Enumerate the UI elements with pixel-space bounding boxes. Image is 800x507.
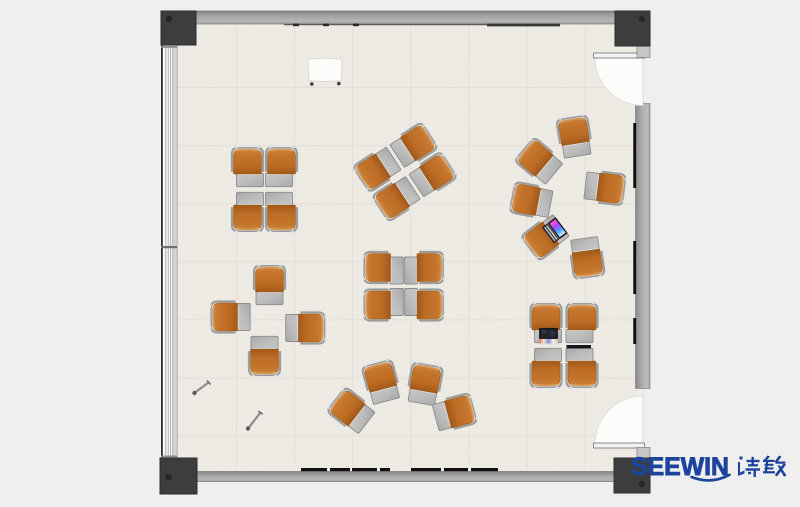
svg-text:SEEWIN: SEEWIN <box>631 453 729 481</box>
